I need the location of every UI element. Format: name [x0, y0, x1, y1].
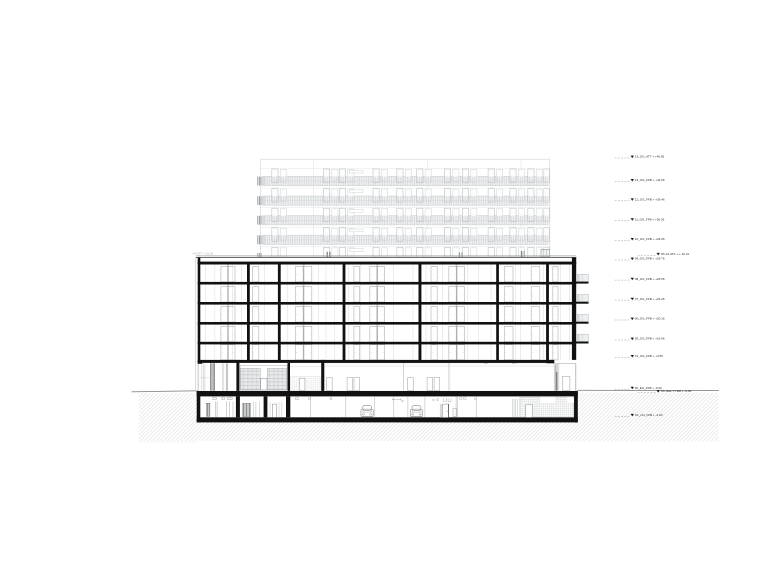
- svg-text:07_OG_FFB + +23.36: 07_OG_FFB + +23.36: [635, 297, 665, 301]
- svg-text:05_OG_FFB + +16.96: 05_OG_FFB + +16.96: [635, 337, 665, 341]
- svg-text:10_OG_FFB + +33.06: 10_OG_FFB + +33.06: [635, 237, 665, 241]
- svg-text:00_EG_FFB + -0.00: 00_EG_FFB + -0.00: [635, 386, 662, 390]
- svg-text:06_OG_FFB + +20.16: 06_OG_FFB + +20.16: [635, 317, 665, 321]
- svg-text:OK,GEL,T.TER + -0.60: OK,GEL,T.TER + -0.60: [661, 389, 692, 393]
- svg-text:01_OG_FFB + +4.55: 01_OG_FFB + +4.55: [635, 354, 663, 358]
- svg-text:13_OG_FFB + +42.66: 13_OG_FFB + +42.66: [635, 178, 665, 182]
- svg-text:OK ATT + +21.56: OK ATT + +21.56: [193, 252, 214, 256]
- svg-text:13_OG_ATT + +46.56: 13_OG_ATT + +46.56: [635, 155, 665, 159]
- svg-text:12_OG_FFB + +39.46: 12_OG_FFB + +39.46: [635, 198, 665, 202]
- svg-text:08_OG_FFB + +26.56: 08_OG_FFB + +26.56: [635, 277, 665, 281]
- svg-text:11_OG_FFB + +36.26: 11_OG_FFB + +36.26: [635, 217, 665, 221]
- svg-text:09_OG_FFB + +29.76: 09_OG_FFB + +29.76: [635, 257, 665, 261]
- svg-text:OK,10,ATK + + 10.41: OK,10,ATK + + 10.41: [661, 252, 690, 256]
- svg-text:U1_UG_FFB + -4.00: U1_UG_FFB + -4.00: [635, 413, 663, 417]
